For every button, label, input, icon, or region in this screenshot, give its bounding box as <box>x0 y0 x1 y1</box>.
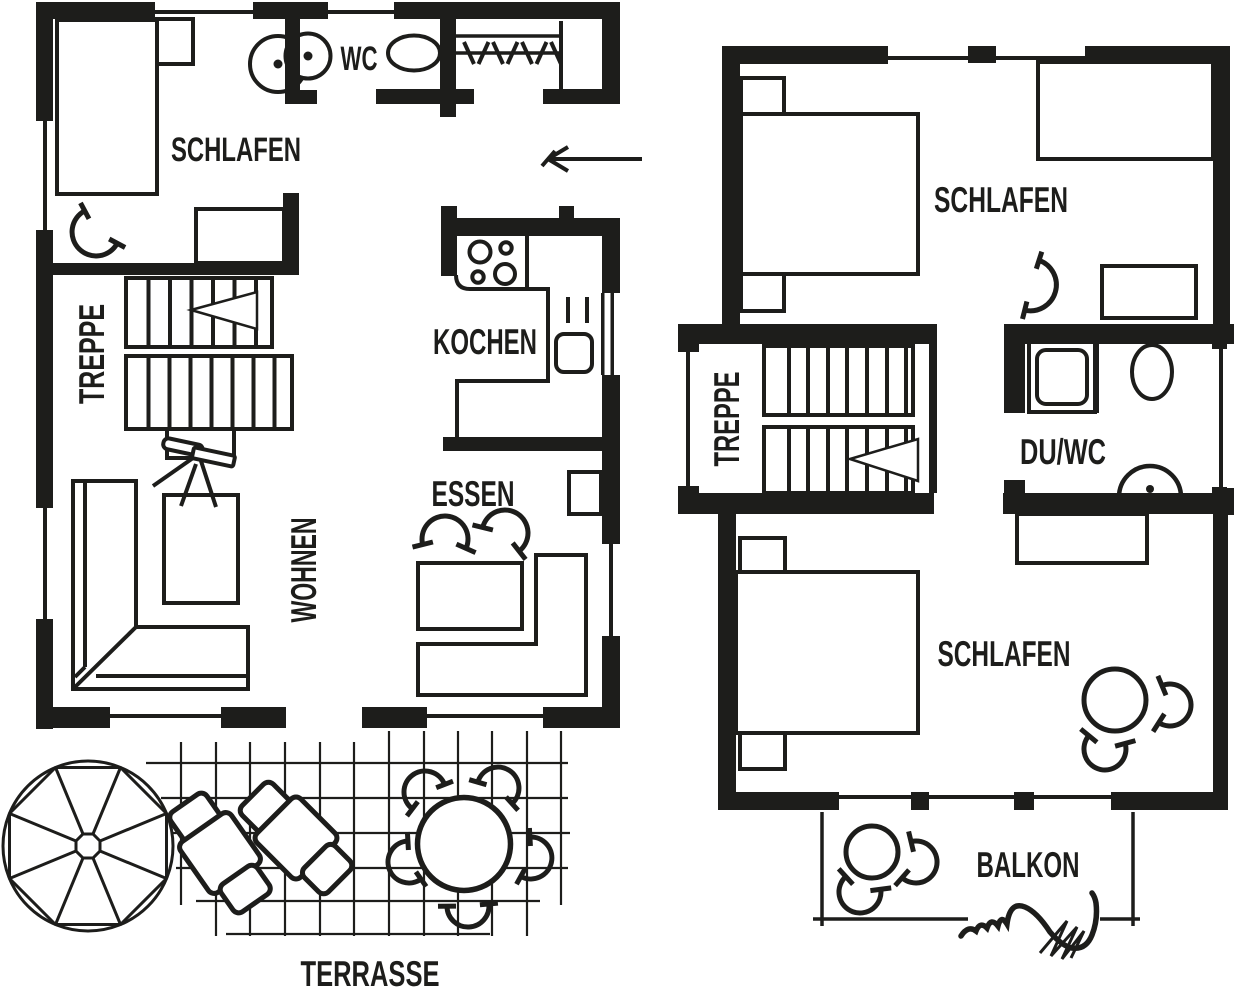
svg-text:TREPPE: TREPPE <box>71 304 112 404</box>
svg-text:TERRASSE: TERRASSE <box>301 953 440 994</box>
svg-text:WC: WC <box>341 40 378 78</box>
svg-text:KOCHEN: KOCHEN <box>433 321 537 362</box>
svg-text:SCHLAFEN: SCHLAFEN <box>938 633 1071 674</box>
svg-text:BALKON: BALKON <box>977 844 1080 885</box>
svg-text:ESSEN: ESSEN <box>432 473 515 514</box>
svg-text:DU/WC: DU/WC <box>1020 431 1106 472</box>
svg-text:SCHLAFEN: SCHLAFEN <box>934 179 1068 220</box>
svg-text:SCHLAFEN: SCHLAFEN <box>171 131 301 169</box>
svg-text:TREPPE: TREPPE <box>706 372 747 467</box>
svg-text:WOHNEN: WOHNEN <box>283 518 324 623</box>
